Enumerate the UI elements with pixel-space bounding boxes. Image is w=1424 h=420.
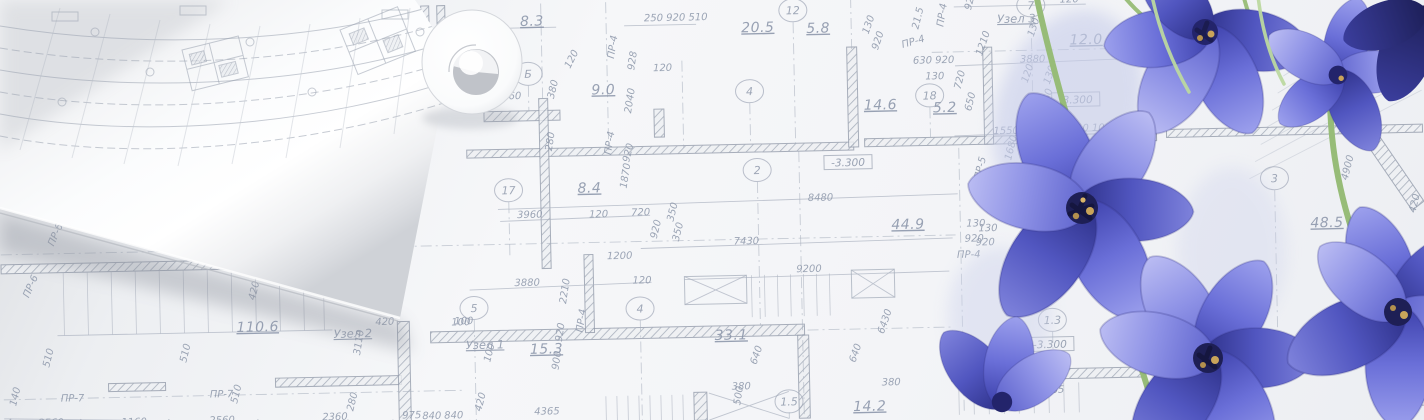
blueprint-annotation: ПР-7 xyxy=(61,393,85,405)
blueprint-annotation: 975 xyxy=(402,410,421,420)
svg-text:17: 17 xyxy=(501,184,515,197)
blueprint-annotation: 1200 xyxy=(607,251,633,263)
blueprint-annotation: 920 xyxy=(621,142,636,163)
blueprint-annotation: 48.5 xyxy=(1310,215,1343,232)
blueprint-annotation: 2360 xyxy=(322,412,348,420)
blueprint-annotation: ПР-4 xyxy=(935,3,949,28)
blueprint-annotation: 33.1 xyxy=(714,327,747,344)
blueprint-annotation: 928 xyxy=(626,51,640,72)
blueprint-annotation: 9.0 xyxy=(591,82,615,98)
grid-axis-bubble: 17 xyxy=(494,178,522,202)
blueprint-annotation: 2040 xyxy=(623,87,638,114)
blueprint-annotation: 920 xyxy=(976,237,995,248)
blueprint-annotation: 350 xyxy=(671,221,686,242)
blueprint-annotation: 120 xyxy=(589,209,608,220)
blueprint-annotation: 1870 xyxy=(619,162,634,189)
blueprint-annotation: 280 xyxy=(345,391,360,412)
blueprint-annotation: 130 xyxy=(978,223,997,234)
blueprint-annotation: 510 xyxy=(41,347,56,368)
blueprint-annotation: ПР-4 xyxy=(606,35,620,60)
grid-axis-bubble: 2 xyxy=(743,158,771,182)
blueprint-annotation: 900 xyxy=(550,350,564,371)
blueprint-annotation: 2210 xyxy=(558,278,573,305)
blueprint-annotation: 8.3 xyxy=(520,13,544,29)
blueprint-annotation: 120 xyxy=(1060,0,1079,6)
paper-roll xyxy=(0,0,522,352)
svg-text:Б: Б xyxy=(524,68,532,81)
blueprint-annotation: 14.6 xyxy=(864,97,897,114)
blueprint-annotation: 120 xyxy=(653,63,672,74)
blueprint-annotation: 5.8 xyxy=(806,20,830,36)
blueprint-annotation: 920 xyxy=(870,30,887,52)
blueprint-annotation: 20.5 xyxy=(741,20,774,37)
svg-text:12: 12 xyxy=(786,4,800,17)
blueprint-annotation: 380 xyxy=(546,79,561,100)
blueprint-annotation: 130 xyxy=(925,71,944,82)
blueprint-annotation: ПР-4 xyxy=(900,34,926,51)
svg-text:2: 2 xyxy=(754,164,761,177)
blueprint-annotation: 6430 xyxy=(876,308,895,336)
blueprint-annotation: 840 xyxy=(444,410,463,420)
grid-axis-bubble: 5 xyxy=(460,296,488,320)
grid-axis-bubble: 18 xyxy=(915,84,943,108)
blueprint-annotation: 4900 xyxy=(1340,154,1357,181)
blueprint-annotation: 720 xyxy=(631,207,650,218)
blueprint-annotation: 510 xyxy=(178,343,193,364)
blueprint-annotation: 44.9 xyxy=(891,217,924,234)
sheet-edge-highlight xyxy=(4,411,774,420)
blueprint-annotation: 3880 xyxy=(514,278,540,290)
blueprint-annotation: 420 xyxy=(473,391,488,412)
blueprint-annotation: 120 xyxy=(563,48,581,70)
blueprint-annotation: 14.2 xyxy=(853,398,886,415)
blueprint-annotation: 120 xyxy=(632,275,651,286)
blueprint-annotation: 110.6 xyxy=(236,319,279,336)
svg-text:-3.300: -3.300 xyxy=(831,157,865,170)
blueprint-annotation: 4365 xyxy=(534,406,560,418)
blueprint-annotation: 920 xyxy=(649,219,664,240)
svg-text:4: 4 xyxy=(636,302,643,315)
grid-axis-bubble: 4 xyxy=(626,297,654,321)
svg-text:3: 3 xyxy=(1271,172,1278,185)
blueprint-annotation: 7430 xyxy=(734,236,760,248)
blueprint-annotation: 5.2 xyxy=(933,100,957,116)
blueprint-annotation: 650 xyxy=(963,91,978,112)
blueprint-annotation: 720 xyxy=(953,69,968,90)
blueprint-annotation: 500 xyxy=(732,385,746,406)
grid-axis-bubble: 4 xyxy=(735,79,763,103)
blueprint-annotation: 140 xyxy=(8,386,23,407)
svg-text:5: 5 xyxy=(470,302,477,315)
blueprint-flower-banner: 8.3250 920 51020.55.81209.060380ПР-49281… xyxy=(0,0,1424,420)
blueprint-annotation: 2560 xyxy=(209,415,235,420)
blueprint-annotation: 840 xyxy=(422,411,441,420)
blueprint-annotation: 9200 xyxy=(796,264,822,276)
paper-roll-curl xyxy=(422,10,522,129)
blueprint-annotation: 350 xyxy=(665,201,680,222)
grid-axis-bubble: 12 xyxy=(779,0,807,22)
blueprint-annotation: 920 xyxy=(963,0,978,11)
blueprint-annotation: 8.4 xyxy=(577,180,601,196)
blueprint-annotation: 21.5 xyxy=(910,6,926,30)
svg-text:18: 18 xyxy=(923,89,937,102)
flower-blossom xyxy=(924,313,1083,420)
svg-text:4: 4 xyxy=(746,85,753,98)
blueprint-annotation: 640 xyxy=(848,342,865,364)
svg-text:7: 7 xyxy=(1027,0,1034,12)
flower-blossom xyxy=(1274,196,1424,420)
blueprint-annotation: ПР-7 xyxy=(210,389,234,401)
blueprint-annotation: 630 920 xyxy=(913,55,955,67)
blueprint-annotation: 100 xyxy=(454,316,473,327)
elevation-mark: -3.300 xyxy=(824,155,872,170)
blueprint-annotation: 8480 xyxy=(808,192,834,204)
blueprint-annotation: 380 xyxy=(882,377,901,388)
flower-branch xyxy=(924,0,1424,420)
svg-text:1.5: 1.5 xyxy=(780,395,798,408)
blueprint-annotation: ПР-6 xyxy=(21,274,41,300)
blueprint-annotation: 640 xyxy=(749,344,766,366)
blueprint-annotation: 250 920 510 xyxy=(644,12,708,24)
blueprint-annotation: 3960 xyxy=(517,210,543,222)
